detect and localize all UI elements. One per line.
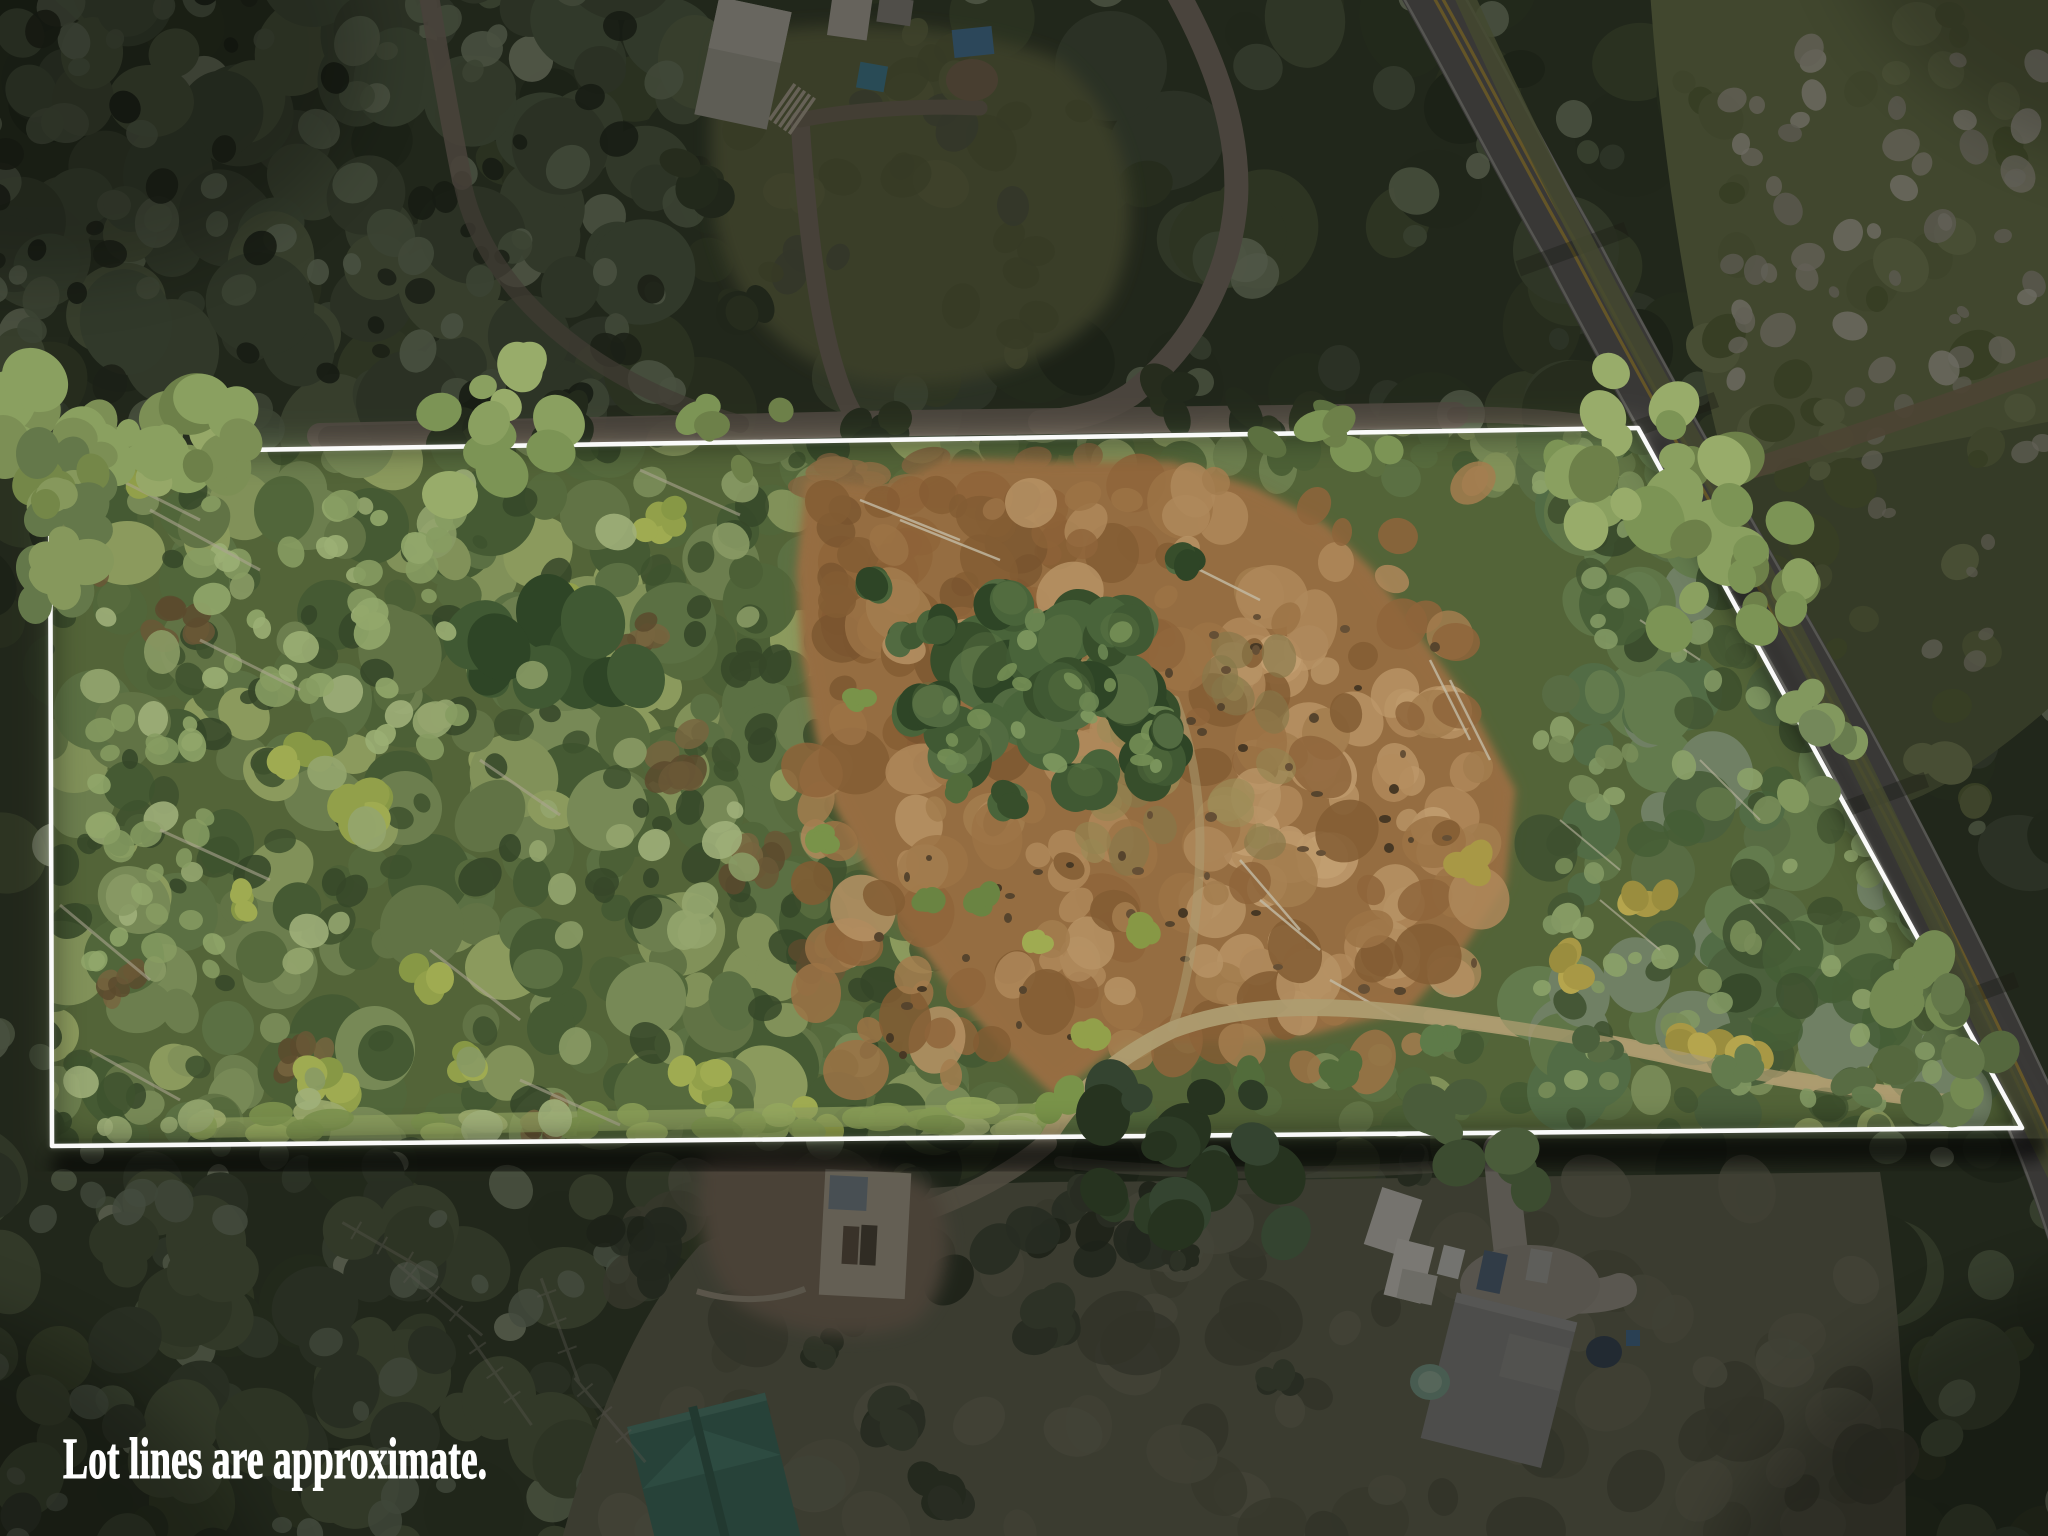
svg-text:Lot lines are approximate.: Lot lines are approximate. — [63, 1426, 487, 1491]
